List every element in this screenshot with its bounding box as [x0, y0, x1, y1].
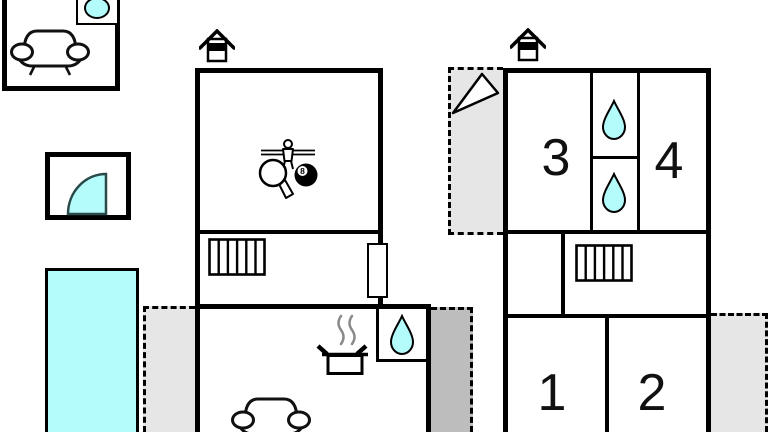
north-arrow-icon: [448, 69, 500, 115]
bathroom-water-drop-icon: [389, 314, 415, 356]
wall: [376, 309, 379, 362]
swimming-pool: [45, 268, 139, 432]
sofa-icon: [10, 26, 90, 76]
wall: [195, 68, 383, 73]
terrace-between-buildings: [431, 307, 473, 432]
wall: [376, 359, 431, 362]
room-label-2: 2: [638, 367, 667, 419]
billiard-ball-icon: 8: [295, 164, 318, 187]
wall: [426, 304, 431, 432]
wall: [706, 68, 711, 432]
billiard-ball-number: 8: [300, 166, 305, 176]
room-label-1: 1: [538, 367, 567, 419]
terrace-poolside: [143, 306, 195, 432]
radiator-icon: [575, 244, 633, 282]
floor-plan: 8 3 4 1 2: [0, 0, 768, 432]
room-label-3: 3: [542, 132, 571, 184]
wall: [503, 230, 711, 234]
wall: [605, 318, 609, 432]
wall: [195, 304, 431, 309]
chimney-icon: [510, 28, 546, 62]
steam-icon: [339, 316, 355, 344]
terrace-annex-right: [711, 313, 768, 432]
bathroom-water-drop-icon: [601, 172, 627, 214]
radiator-icon: [208, 238, 266, 276]
game-room-icons: 8: [255, 136, 321, 202]
wall: [503, 68, 711, 73]
wall: [593, 156, 637, 159]
wall: [561, 234, 565, 318]
table-tennis-paddle-icon: [260, 160, 293, 198]
wall: [195, 68, 200, 432]
room-label-4: 4: [655, 135, 684, 187]
chimney-icon: [199, 29, 235, 63]
wall: [590, 73, 593, 231]
cooking-pot-icon: [310, 312, 374, 374]
wall: [637, 73, 640, 231]
shower-quarter-circle-icon: [64, 170, 110, 218]
window-opening: [367, 243, 388, 298]
wall: [503, 68, 508, 432]
wall: [195, 230, 383, 234]
sofa-icon: [231, 394, 311, 432]
bathroom-water-drop-icon: [601, 99, 627, 141]
